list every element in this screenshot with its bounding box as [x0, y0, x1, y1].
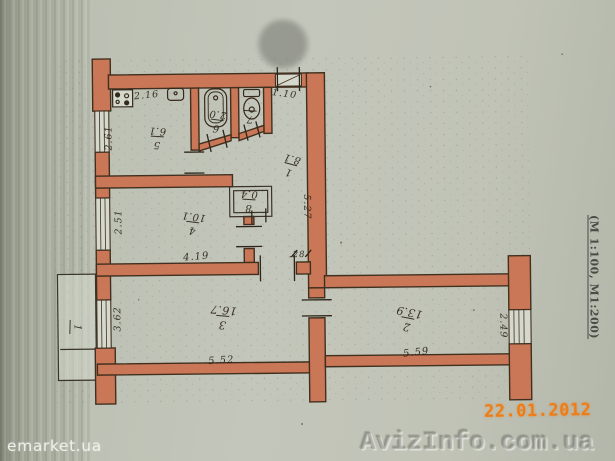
dim-room3-width: 5.52	[208, 355, 235, 368]
scale-note-text: (М 1:100, М1:200)	[588, 215, 601, 339]
balcony-label: 1	[71, 320, 82, 335]
dim-room4-width: 4.19	[183, 251, 210, 264]
floor-plan-linework	[0, 0, 615, 461]
scale-note: (М 1:100, М1:200)	[588, 215, 601, 339]
dim-room3-depth: 3.62	[112, 306, 123, 331]
room-2-label: 2 13.9	[392, 303, 423, 335]
watermark-avizinfo: AvizInfo.com.ua	[360, 427, 594, 457]
room-area: 10.1	[181, 209, 207, 224]
room-3-label: 3 16.7	[208, 302, 237, 332]
room-area: 2.0	[208, 107, 227, 121]
dim-wall-offset: .28	[289, 250, 306, 260]
stove-icon	[113, 90, 133, 107]
room-area: 16.7	[210, 302, 238, 317]
room-number: 4	[185, 221, 200, 236]
room-6-bath-label: 6 2.0	[207, 107, 227, 134]
dim-room2-depth: 2.49	[497, 313, 508, 338]
camera-date-stamp: 22.01.2012	[484, 400, 592, 422]
dim-room4-depth: 2.51	[113, 209, 124, 234]
room-number: 6	[209, 119, 224, 134]
room-number: 1	[69, 320, 82, 335]
room-8-closet-label: 8 0.4	[239, 188, 258, 214]
room-4-label: 4 10.1	[179, 209, 206, 237]
room-number: 8	[242, 199, 256, 213]
room-number: 7	[243, 110, 257, 124]
room-number: 3	[215, 315, 230, 331]
floor-plan-photo: 5 6.1 6 2.0 7 1 8.1 8 0.4 4 10.1 3 16.7 …	[0, 0, 615, 461]
watermark-emarket: emarket.ua	[7, 437, 102, 455]
room-7-wc-label: 7	[243, 110, 257, 124]
floor-plan-drawing: 5 6.1 6 2.0 7 1 8.1 8 0.4 4 10.1 3 16.7 …	[0, 0, 615, 461]
room-area: 0.4	[240, 188, 258, 201]
room-number: 5	[150, 136, 164, 150]
dim-hall-length: 5.27	[301, 194, 312, 219]
room-5-kitchen-label: 5 6.1	[148, 124, 167, 150]
dim-kitchen-depth: 2.61	[103, 125, 114, 150]
room-area: 6.1	[148, 124, 166, 137]
